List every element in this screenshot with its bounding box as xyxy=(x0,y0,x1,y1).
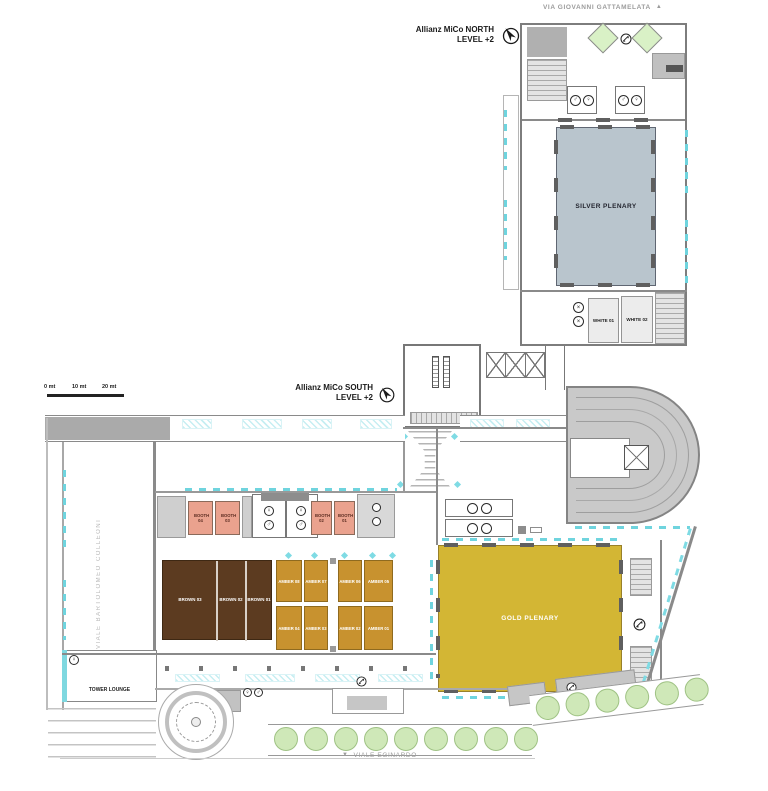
room-amber-08: AMBER 08 xyxy=(276,560,302,602)
ramp-core xyxy=(570,438,630,478)
foyer-wall xyxy=(403,442,405,492)
site-boundary-left xyxy=(46,418,48,710)
room-amber-06: AMBER 06 xyxy=(338,560,362,602)
vent-hatch xyxy=(378,674,423,682)
room-amber-08-label: AMBER 08 xyxy=(278,579,299,584)
bridge-truss xyxy=(487,353,506,377)
exit-number-icon xyxy=(372,517,381,526)
street-label-top: VIA GIOVANNI GATTAMELATA ▲ xyxy=(543,4,713,11)
room-brown-02-label: BROWN 02 xyxy=(215,597,247,602)
south-west-wing-wall xyxy=(45,417,170,440)
room-amber-03: AMBER 03 xyxy=(304,606,328,650)
silver-door-tabs-left xyxy=(554,140,558,272)
room-booth-02: BOOTH 02 xyxy=(311,501,332,535)
street-top-text: VIA GIOVANNI GATTAMELATA xyxy=(543,4,651,11)
grand-stair xyxy=(408,431,452,489)
room-amber-01: AMBER 01 xyxy=(364,606,393,650)
gold-door-tabs-left xyxy=(436,560,440,678)
brown-rooms-block: BROWN 03 BROWN 02 BROWN 01 xyxy=(162,560,272,640)
room-booth-02-label: BOOTH 02 xyxy=(315,513,328,523)
amber-corridor-post xyxy=(330,646,336,652)
teal-marker xyxy=(285,552,292,559)
teal-marker xyxy=(311,552,318,559)
exit-number-icon xyxy=(481,523,492,534)
tree-icon xyxy=(564,691,591,718)
vent-hatch xyxy=(302,419,332,429)
vent-hatch xyxy=(182,419,212,429)
restroom-icon-female: ♀ xyxy=(243,688,252,697)
escalator-icon-south xyxy=(356,676,367,687)
north-stair-se xyxy=(655,292,685,344)
teal-marker xyxy=(454,481,461,488)
compass-icon-south xyxy=(377,385,397,405)
tree-icon xyxy=(334,727,358,751)
tree-icon xyxy=(274,727,298,751)
vent-hatch xyxy=(175,674,220,682)
foyer-cell-2 xyxy=(445,519,513,537)
room-brown-01-label: BROWN 01 xyxy=(245,597,273,602)
exit-number-icon xyxy=(372,503,381,512)
exit-number-icon xyxy=(481,503,492,514)
room-amber-02: AMBER 02 xyxy=(338,606,362,650)
room-amber-06-label: AMBER 06 xyxy=(339,579,360,584)
south-title-line2: LEVEL +2 xyxy=(283,393,373,403)
street-bottom-text: VIALE EGINARDO xyxy=(354,752,417,759)
restroom-block-header xyxy=(261,493,309,501)
room-tower-lounge-label: TOWER LOUNGE xyxy=(89,687,130,693)
exit-number-icon xyxy=(467,523,478,534)
room-amber-05-label: AMBER 05 xyxy=(368,579,389,584)
room-brown-03-label: BROWN 03 xyxy=(165,597,215,602)
hall-west-wall xyxy=(153,442,156,655)
gold-door-tabs-right xyxy=(619,560,623,678)
room-booth-01: BOOTH 01 xyxy=(334,501,355,535)
restroom-icon-female: ♀ xyxy=(631,95,642,106)
foyer-wall-east xyxy=(436,428,438,545)
silver-door-tabs-bottom xyxy=(560,283,652,287)
restroom-block-south: ♀ ♂ ♀ ♂ xyxy=(252,494,318,538)
south-title: Allianz MiCo SOUTH LEVEL +2 xyxy=(283,383,373,403)
cloakroom-counter xyxy=(518,526,526,534)
room-white-01-label: WHITE 01 xyxy=(593,318,614,323)
entrance-columns xyxy=(165,666,435,671)
ramp-elevator-shaft xyxy=(624,445,649,470)
booth-service-block xyxy=(157,496,186,538)
silver-door-tabs-top xyxy=(560,125,652,129)
tower-lounge-glass xyxy=(62,650,67,702)
room-white-01: WHITE 01 xyxy=(588,298,619,343)
teal-marker xyxy=(341,552,348,559)
restroom-icon-male: ♂ xyxy=(296,520,306,530)
teal-accent xyxy=(685,130,688,200)
restroom-block-north-2: ♂ ♀ xyxy=(615,86,645,114)
north-stair-core xyxy=(527,59,567,101)
restroom-icon-male: ♂ xyxy=(570,95,581,106)
vent-hatch xyxy=(315,674,360,682)
south-arrow-icon: ▼ xyxy=(342,752,349,759)
exit-number-icon xyxy=(467,503,478,514)
vent-hatch xyxy=(360,419,392,429)
restroom-divider xyxy=(285,501,287,537)
teal-accent xyxy=(63,580,66,640)
teal-marker xyxy=(369,552,376,559)
restroom-icon-male: ♂ xyxy=(254,688,263,697)
tree-icon xyxy=(484,727,508,751)
teal-accent xyxy=(63,470,66,550)
tree-icon xyxy=(594,687,621,714)
storage-block xyxy=(357,494,395,538)
tree-icon xyxy=(304,727,328,751)
north-block-ne-bar xyxy=(666,65,683,72)
room-gold-plenary-label: GOLD PLENARY xyxy=(501,615,558,622)
room-booth-03: BOOTH 03 xyxy=(215,501,240,535)
south-title-line1: Allianz MiCo SOUTH xyxy=(283,383,373,393)
room-amber-03-label: AMBER 03 xyxy=(305,626,326,631)
room-amber-07: AMBER 07 xyxy=(304,560,328,602)
room-amber-01-label: AMBER 01 xyxy=(368,626,389,631)
gold-door-tabs-top xyxy=(444,543,616,547)
rotunda xyxy=(158,684,234,760)
foyer-cell-1 xyxy=(445,499,513,517)
teal-accent xyxy=(504,200,507,260)
teal-accent xyxy=(575,526,690,529)
east-stair-1 xyxy=(630,558,652,596)
silver-north-doors xyxy=(558,118,654,122)
restroom-icon-female: ♀ xyxy=(296,506,306,516)
hall-south-wall xyxy=(62,653,436,655)
entry-vestibule xyxy=(332,688,404,714)
tree-icon xyxy=(654,680,681,707)
north-south-link xyxy=(545,346,565,390)
terrace-steps xyxy=(48,708,156,760)
scale-0: 0 mt xyxy=(44,384,55,390)
cloakroom-counter xyxy=(530,527,542,533)
escalator-icon-north xyxy=(620,33,632,45)
north-title: Allianz MiCo NORTH LEVEL +2 xyxy=(404,25,494,45)
elevator-icon: × xyxy=(573,302,584,313)
room-amber-04: AMBER 04 xyxy=(276,606,302,650)
restroom-icon-male: ♂ xyxy=(618,95,629,106)
north-title-line2: LEVEL +2 xyxy=(404,35,494,45)
teal-marker xyxy=(451,433,458,440)
vestibule-block xyxy=(347,696,387,710)
room-amber-05: AMBER 05 xyxy=(364,560,393,602)
scale-10: 10 mt xyxy=(72,384,86,390)
scale-bar-line xyxy=(47,394,124,397)
escalator-shaft xyxy=(432,356,439,388)
room-white-02: WHITE 02 xyxy=(621,296,653,343)
room-amber-07-label: AMBER 07 xyxy=(305,579,326,584)
vent-hatch xyxy=(245,674,295,682)
north-arrow-icon: ▲ xyxy=(656,4,663,11)
teal-accent xyxy=(504,110,507,170)
north-block-ne xyxy=(652,53,685,79)
room-amber-02-label: AMBER 02 xyxy=(339,626,360,631)
teal-accent xyxy=(442,538,620,541)
restroom-icon-female: ♀ xyxy=(583,95,594,106)
street-label-bottom: ▼ VIALE EGINARDO xyxy=(342,752,482,759)
restroom-icon-female: ♀ xyxy=(69,655,79,665)
room-gold-plenary: GOLD PLENARY xyxy=(438,545,622,692)
tree-icon xyxy=(514,727,538,751)
escalator-shaft xyxy=(443,356,450,388)
teal-accent xyxy=(185,488,397,491)
foyer-wall-top xyxy=(403,427,568,429)
restroom-block-north-1: ♂ ♀ xyxy=(567,86,597,114)
vent-hatch xyxy=(242,419,282,429)
restroom-icon-male: ♂ xyxy=(264,520,274,530)
room-booth-04: BOOTH 04 xyxy=(188,501,213,535)
room-white-02-label: WHITE 02 xyxy=(626,317,647,322)
room-silver-plenary: SILVER PLENARY xyxy=(556,127,656,286)
room-booth-01-label: BOOTH 01 xyxy=(338,513,351,523)
silver-door-tabs-right xyxy=(651,140,655,272)
tree-icon xyxy=(534,695,561,722)
rotunda-center xyxy=(191,717,201,727)
bridge-truss xyxy=(526,353,544,377)
room-booth-03-label: BOOTH 03 xyxy=(221,513,234,523)
tree-icon xyxy=(424,727,448,751)
amber-corridor xyxy=(330,558,336,652)
tree-icon xyxy=(364,727,388,751)
compass-icon-north xyxy=(500,25,522,47)
bridge-truss xyxy=(506,353,525,377)
elevator-icon: × xyxy=(573,316,584,327)
floor-plan: VIA GIOVANNI GATTAMELATA ▲ Allianz MiCo … xyxy=(0,0,768,791)
amber-corridor-post xyxy=(330,558,336,564)
north-service-block xyxy=(527,27,567,57)
teal-accent xyxy=(685,220,688,290)
teal-accent xyxy=(430,560,433,680)
teal-marker xyxy=(389,552,396,559)
room-silver-plenary-label: SILVER PLENARY xyxy=(575,203,636,210)
tree-icon xyxy=(683,676,710,703)
scale-20: 20 mt xyxy=(102,384,116,390)
tree-icon xyxy=(394,727,418,751)
room-amber-04-label: AMBER 04 xyxy=(278,626,299,631)
tree-icon xyxy=(624,684,651,711)
tree-icon xyxy=(454,727,478,751)
booth-divider-block xyxy=(242,496,252,538)
street-label-left: VIALE BARTOLOMEO COLLEONI xyxy=(96,496,110,671)
room-booth-04-label: BOOTH 04 xyxy=(194,513,207,523)
scale-bar: 0 mt 10 mt 20 mt xyxy=(44,384,144,400)
restroom-icon-female: ♀ xyxy=(264,506,274,516)
bridge xyxy=(486,352,545,378)
escalator-icon-east xyxy=(633,618,646,631)
north-title-line1: Allianz MiCo NORTH xyxy=(404,25,494,35)
